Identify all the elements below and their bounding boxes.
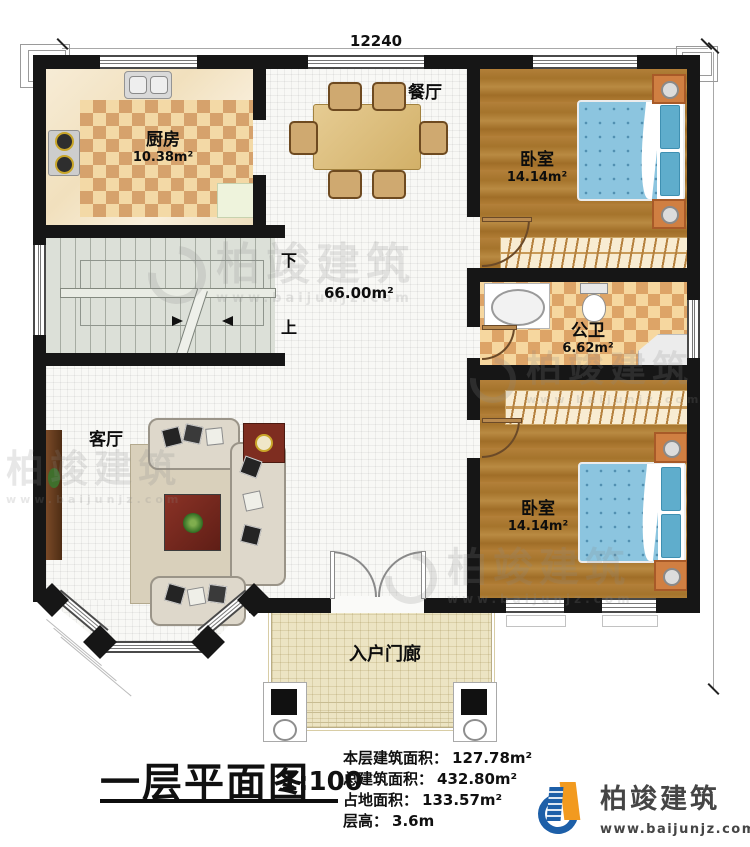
bathroom-door-leaf <box>482 325 517 330</box>
wall <box>687 55 700 300</box>
nightstand <box>654 560 688 591</box>
room-area: 10.38m² <box>118 150 208 165</box>
wall <box>33 353 285 366</box>
stat-row: 层高： 3.6m <box>343 811 532 832</box>
wall <box>253 68 266 120</box>
stat-label: 总建筑面积： <box>343 769 433 790</box>
kitchen-sink <box>124 71 172 99</box>
sink-basin <box>129 76 147 94</box>
top-dimension-label: 12240 <box>340 32 412 50</box>
wall <box>467 358 480 420</box>
stat-label: 层高： <box>343 811 388 832</box>
window-sill <box>506 615 566 627</box>
room-area: 14.14m² <box>492 170 582 185</box>
wall <box>564 598 602 613</box>
wall <box>424 55 533 69</box>
sink-basin <box>150 76 168 94</box>
toilet-bowl <box>582 294 606 322</box>
wall <box>33 55 46 245</box>
front-door-opening <box>331 596 424 613</box>
plant <box>48 468 60 488</box>
brand-website: www.baijunjz.com <box>600 822 750 837</box>
floor-plan-page: 12240 11720 下 上 66.00m² <box>0 0 750 847</box>
living-label: 客厅 <box>84 430 128 450</box>
kitchen-appliance <box>217 183 255 218</box>
watermark-logo-icon <box>0 445 6 513</box>
corner-table-decor <box>255 434 273 452</box>
window <box>308 55 424 69</box>
dining-chair <box>328 82 362 111</box>
sofa-pillow <box>207 584 227 604</box>
dining-table <box>313 104 421 170</box>
stair-arrow <box>222 316 233 326</box>
porch-label: 入户门廊 <box>330 644 440 665</box>
kitchen-label: 厨房 10.38m² <box>118 130 208 165</box>
sofa-pillow <box>205 427 224 446</box>
wall <box>424 598 482 613</box>
stat-label: 本层建筑面积： <box>343 748 448 769</box>
wall <box>467 68 480 217</box>
window <box>33 245 46 335</box>
wall <box>687 358 700 613</box>
wall <box>467 268 480 327</box>
sofa-pillow <box>182 423 203 444</box>
stairs-up-label: 上 <box>281 314 297 338</box>
room-area: 6.62m² <box>545 341 631 356</box>
bed <box>577 100 685 201</box>
dining-chair <box>372 170 406 199</box>
bay-window <box>104 641 204 653</box>
bathroom-label: 公卫 6.62m² <box>545 321 631 356</box>
sofa-pillow <box>187 587 207 607</box>
stairs-down-label: 下 <box>281 247 297 271</box>
room-name: 客厅 <box>89 430 123 450</box>
room-name: 公卫 <box>571 321 605 341</box>
bedroom-bottom-label: 卧室 14.14m² <box>488 499 588 534</box>
room-name: 入户门廊 <box>349 644 421 665</box>
stat-label: 占地面积： <box>343 790 418 811</box>
wall <box>480 598 506 613</box>
room-name: 卧室 <box>520 150 554 170</box>
stats-block: 本层建筑面积： 127.78m² 总建筑面积： 432.80m² 占地面积： 1… <box>343 748 532 832</box>
stat-value: 3.6m <box>392 811 434 832</box>
logo-building-blue <box>547 787 564 821</box>
wall <box>33 225 285 238</box>
wardrobe <box>505 390 689 425</box>
bathroom-sink <box>491 289 545 326</box>
right-dimension-line <box>713 52 714 690</box>
nightstand <box>652 74 686 104</box>
brand-site: www.baijunjz.com <box>600 818 750 837</box>
wall <box>197 55 308 69</box>
brand-logo-icon <box>538 780 592 838</box>
dining-chair <box>372 82 406 111</box>
nightstand <box>652 199 686 229</box>
porch-column <box>271 689 297 715</box>
window <box>533 55 637 69</box>
tv-cabinet <box>46 430 62 560</box>
bed-pillows <box>657 102 683 199</box>
brand-company: 柏竣建筑 <box>600 784 720 815</box>
window <box>100 55 197 69</box>
window <box>602 598 656 613</box>
dining-chair <box>419 121 448 155</box>
coffee-table <box>164 494 221 551</box>
dining-chair <box>289 121 318 155</box>
brand-name: 柏竣建筑 <box>600 786 720 813</box>
porch-column-footing <box>273 719 297 741</box>
stat-row: 总建筑面积： 432.80m² <box>343 769 532 790</box>
sofa-pillow <box>242 490 263 511</box>
wall <box>480 268 700 282</box>
stat-value: 432.80m² <box>437 769 517 790</box>
porch-column <box>461 689 487 715</box>
bedroom-bottom-door-leaf <box>482 418 522 423</box>
bedroom-top-label: 卧室 14.14m² <box>492 150 582 185</box>
window-sill <box>602 615 658 627</box>
stove-burner <box>55 132 74 151</box>
window <box>506 598 564 613</box>
wall <box>656 598 700 613</box>
porch-column-footing <box>463 719 487 741</box>
wall <box>33 335 46 602</box>
dining-label: 餐厅 <box>403 83 447 103</box>
stat-row: 占地面积： 133.57m² <box>343 790 532 811</box>
stat-value: 127.78m² <box>452 748 532 769</box>
bedroom-top-door-leaf <box>482 217 532 222</box>
stat-row: 本层建筑面积： 127.78m² <box>343 748 532 769</box>
front-door-leaf <box>330 551 335 599</box>
stove-burner <box>55 155 74 174</box>
window <box>687 300 700 358</box>
wall <box>467 458 480 600</box>
stair-arrow <box>172 316 183 326</box>
stair-rail <box>60 288 276 298</box>
stat-value: 133.57m² <box>422 790 502 811</box>
bed <box>578 462 686 563</box>
dining-chair <box>328 170 362 199</box>
room-name: 餐厅 <box>408 83 442 103</box>
room-area: 14.14m² <box>488 519 588 534</box>
table-plant <box>183 513 203 533</box>
room-name: 卧室 <box>521 499 555 519</box>
kitchen-stove <box>48 130 80 176</box>
wall <box>480 365 700 380</box>
toilet-tank <box>580 283 608 294</box>
bed-pillows <box>658 464 684 561</box>
nightstand <box>654 432 688 463</box>
front-door-leaf <box>421 551 426 599</box>
stairs-area-label: 66.00m² <box>324 284 394 302</box>
title-underline <box>100 799 338 803</box>
room-name: 厨房 <box>146 130 180 150</box>
wardrobe <box>500 237 689 269</box>
